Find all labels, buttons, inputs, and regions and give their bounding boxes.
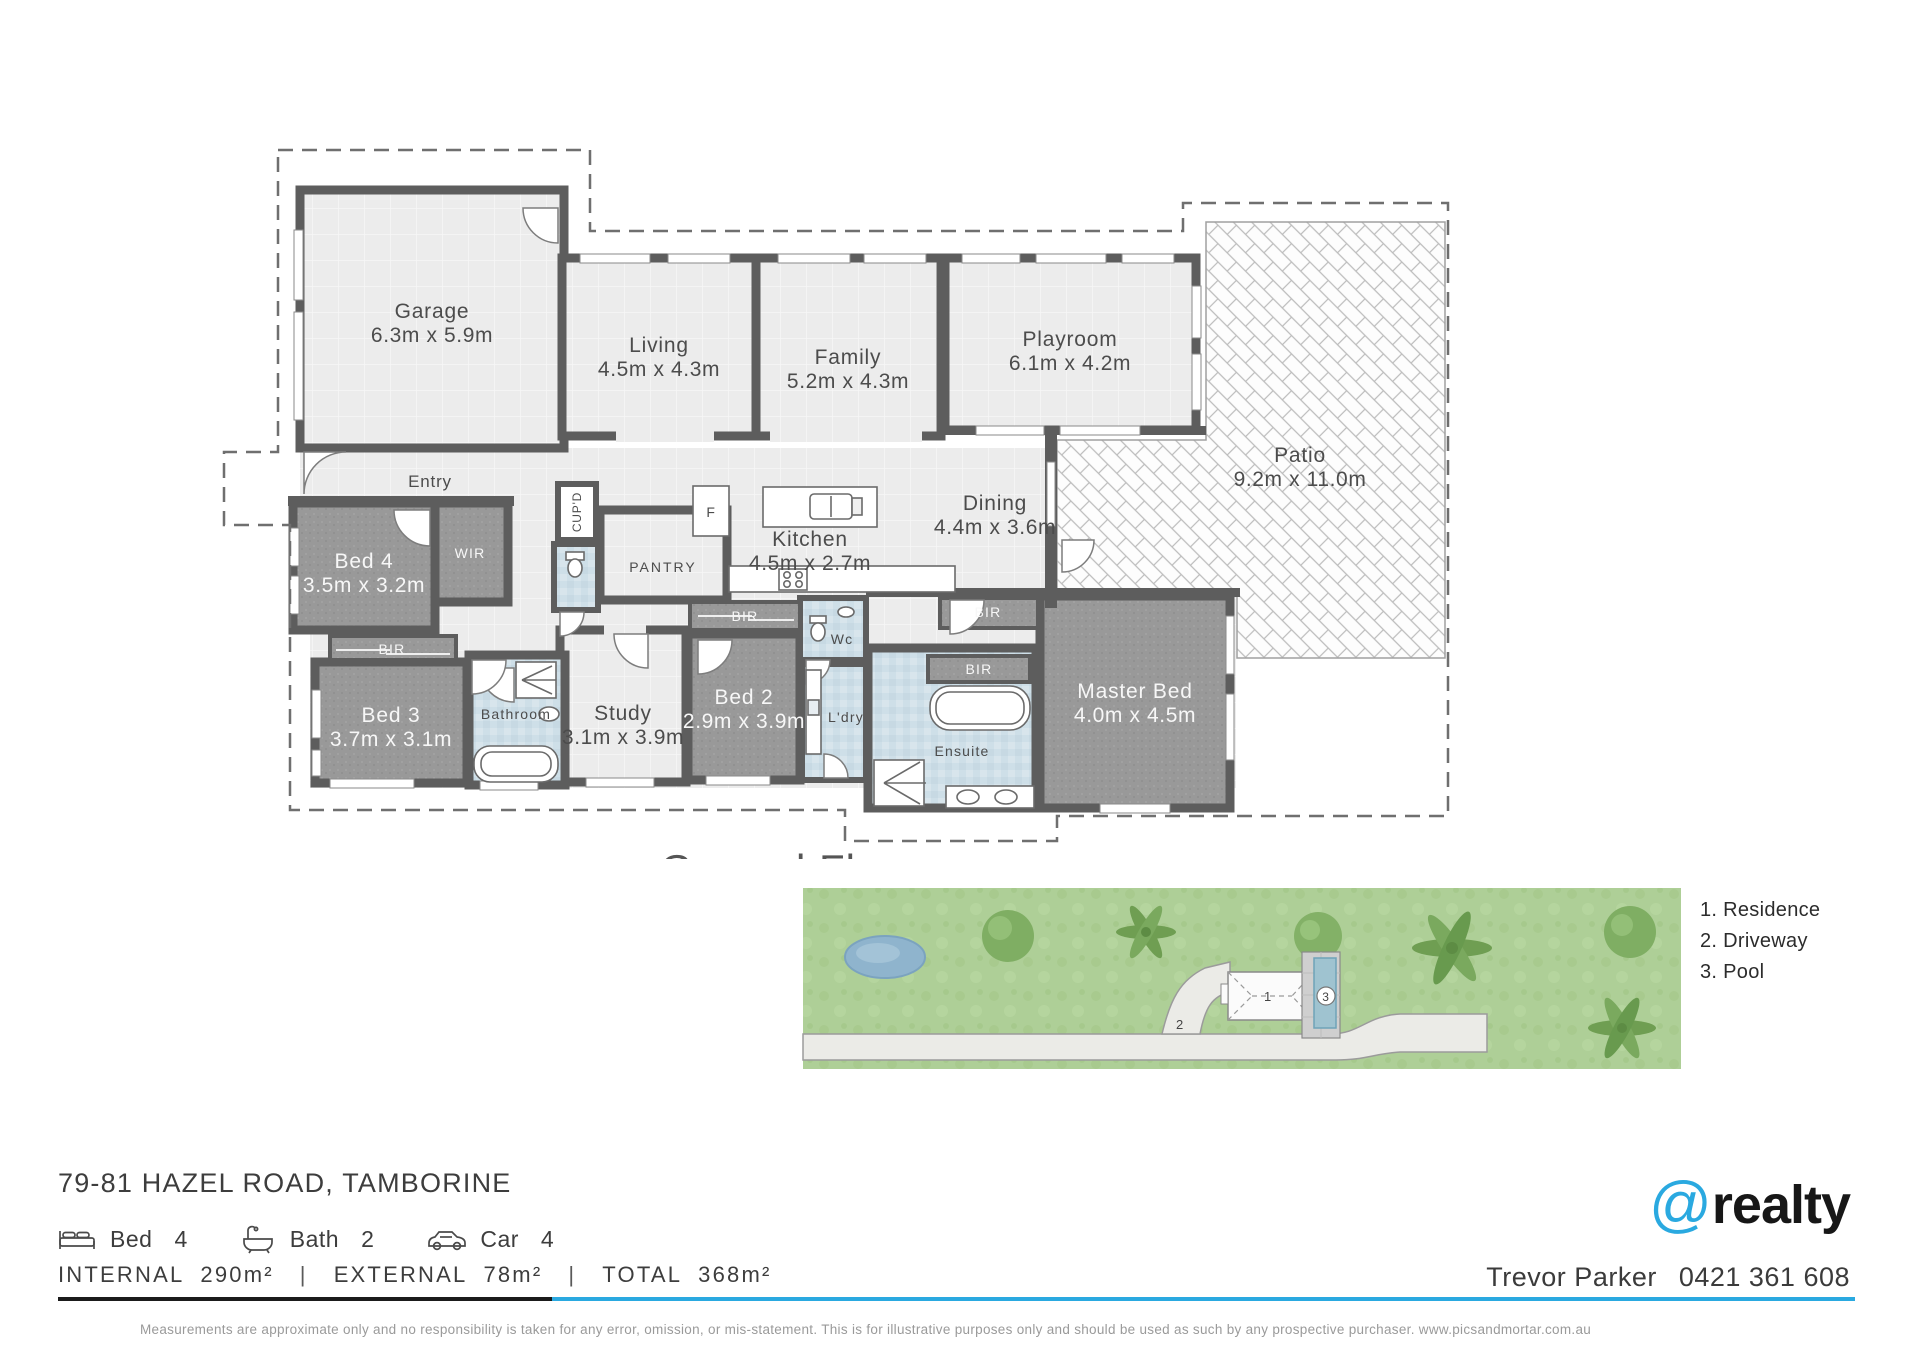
study-label: Study [594, 702, 652, 725]
disclaimer-text: Measurements are approximate only and no… [140, 1322, 1591, 1337]
bed-icon [58, 1225, 98, 1253]
family-label: Family [815, 346, 882, 369]
bathroom-label: Bathroom [481, 706, 551, 722]
laundry-label: L'dry [828, 709, 864, 725]
floor-plan: Garage 6.3m x 5.9m Living 4.5m x 4.3m Fa… [0, 0, 1920, 1357]
wc-label: Wc [831, 631, 854, 647]
feature-car: Car 4 [426, 1226, 554, 1253]
legend-residence: 1. Residence [1700, 899, 1820, 922]
bir-ensuite-label: BIR [966, 661, 993, 677]
feature-car-label: Car [480, 1226, 519, 1253]
ensuite-label: Ensuite [934, 743, 989, 759]
feature-car-value: 4 [541, 1226, 554, 1253]
marker-pool: 3 [1322, 990, 1329, 1004]
feature-bath-label: Bath [290, 1226, 339, 1253]
external-label: EXTERNAL [334, 1262, 468, 1288]
agent-name: Trevor Parker [1486, 1262, 1657, 1293]
master-dims: 4.0m x 4.5m [1074, 704, 1196, 727]
external-value: 78m² [483, 1262, 542, 1288]
total-label: TOTAL [602, 1262, 682, 1288]
at-icon: @ [1649, 1174, 1712, 1236]
agent-contact: Trevor Parker 0421 361 608 [1486, 1262, 1850, 1293]
pond-highlight [856, 943, 900, 963]
site-pool: 3 [1302, 952, 1340, 1038]
legend-driveway: 2. Driveway [1700, 930, 1820, 953]
patio-label: Patio [1274, 444, 1326, 467]
patio-dims: 9.2m x 11.0m [1234, 468, 1367, 491]
bed2-dims: 2.9m x 3.9m [683, 710, 805, 733]
garage-label: Garage [395, 300, 470, 323]
feature-bed-value: 4 [174, 1226, 187, 1253]
area-summary: INTERNAL 290m² | EXTERNAL 78m² | TOTAL 3… [58, 1262, 772, 1288]
toilet [568, 559, 582, 577]
bed4-dims: 3.5m x 3.2m [303, 574, 425, 597]
kitchen-dims: 4.5m x 2.7m [749, 552, 871, 575]
internal-value: 290m² [200, 1262, 273, 1288]
dining-dims: 4.4m x 3.6m [934, 516, 1056, 539]
bath-icon [240, 1224, 278, 1254]
family-dims: 5.2m x 4.3m [787, 370, 909, 393]
bir-center-label: BIR [732, 608, 759, 624]
playroom-dims: 6.1m x 4.2m [1009, 352, 1131, 375]
separator: | [300, 1262, 308, 1288]
legend-pool: 3. Pool [1700, 961, 1820, 984]
brand-name: realty [1712, 1178, 1850, 1232]
site-legend: 1. Residence 2. Driveway 3. Pool [1700, 899, 1820, 992]
feature-bed-label: Bed [110, 1226, 152, 1253]
total-value: 368m² [698, 1262, 771, 1288]
fridge-label: F [706, 504, 715, 520]
internal-label: INTERNAL [58, 1262, 184, 1288]
room-wc [800, 598, 866, 660]
living-label: Living [629, 334, 689, 357]
pantry-label: PANTRY [629, 559, 697, 575]
living-dims: 4.5m x 4.3m [598, 358, 720, 381]
bed2-label: Bed 2 [715, 686, 774, 709]
entry-label: Entry [408, 472, 452, 491]
brand-logo: @realty [1649, 1174, 1850, 1236]
bed4-label: Bed 4 [335, 550, 394, 573]
kitchen-label: Kitchen [772, 528, 848, 551]
feature-bed: Bed 4 [58, 1225, 188, 1253]
feature-bath: Bath 2 [240, 1224, 375, 1254]
separator: | [568, 1262, 576, 1288]
wir-label: WIR [455, 545, 486, 561]
dining-label: Dining [963, 492, 1027, 515]
bir-bed3-label: BIR [379, 641, 406, 657]
toilet-wc [811, 623, 825, 641]
flyer-page: Garage 6.3m x 5.9m Living 4.5m x 4.3m Fa… [0, 0, 1920, 1357]
site-house: 1 [1221, 972, 1314, 1020]
ensuite-vanity [946, 786, 1034, 808]
site-plan: 1 3 2 [803, 888, 1681, 1069]
car-icon [426, 1226, 468, 1252]
basin-wc [838, 607, 854, 617]
footer-rule [58, 1297, 1855, 1301]
agent-phone: 0421 361 608 [1679, 1262, 1850, 1293]
playroom-label: Playroom [1022, 328, 1117, 351]
marker-residence: 1 [1264, 989, 1272, 1004]
bed3-dims: 3.7m x 3.1m [330, 728, 452, 751]
cupd-label: CUP'D [570, 492, 584, 532]
garage-dims: 6.3m x 5.9m [371, 324, 493, 347]
master-label: Master Bed [1077, 680, 1192, 703]
property-address: 79-81 HAZEL ROAD, TAMBORINE [58, 1168, 512, 1199]
bir-master-label: BIR [975, 604, 1002, 620]
feature-bath-value: 2 [361, 1226, 374, 1253]
floor-title-partial: Ground Floor [660, 846, 919, 893]
study-dims: 3.1m x 3.9m [562, 726, 684, 749]
feature-summary: Bed 4 Bath 2 Car 4 [58, 1224, 554, 1254]
bed3-label: Bed 3 [362, 704, 421, 727]
marker-driveway: 2 [1176, 1017, 1184, 1032]
